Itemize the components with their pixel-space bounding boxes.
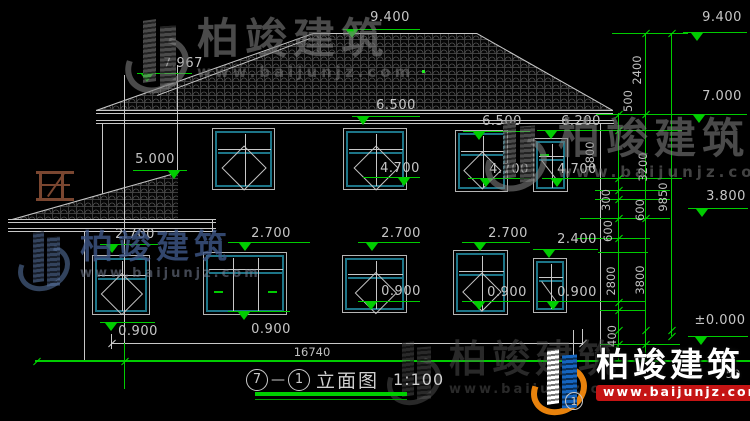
vdim-text: 2800 xyxy=(604,251,618,311)
level-text: 2.700 xyxy=(368,226,434,241)
title-underline xyxy=(255,392,407,396)
brand-logo-icon xyxy=(20,230,74,294)
level-triangle-icon xyxy=(398,178,410,186)
pane-dash xyxy=(268,291,277,293)
level-text: 2.700 xyxy=(102,227,168,242)
outline-line xyxy=(124,75,125,343)
outline-line xyxy=(96,120,614,121)
axis-circle-to: 1 xyxy=(288,369,310,391)
outline-line xyxy=(96,113,613,114)
watermark-text: 柏竣建筑 www.baijunjz.com xyxy=(449,340,630,396)
outline-line xyxy=(8,222,216,223)
level-triangle-icon xyxy=(366,243,378,251)
window xyxy=(212,128,275,190)
outline-line xyxy=(124,343,125,389)
level-triangle-icon xyxy=(543,250,555,258)
axis-dash: — xyxy=(271,372,285,388)
level-text: 9.400 xyxy=(357,10,423,25)
hdim-text: 16740 xyxy=(282,345,342,359)
level-line xyxy=(468,178,530,179)
level-triangle-icon xyxy=(239,243,251,251)
level-triangle-icon xyxy=(141,74,153,82)
brand-url: www.baijunjz.com xyxy=(449,383,630,396)
outline-line xyxy=(313,33,477,34)
level-text: ±0.000 xyxy=(687,313,750,328)
level-text: 0.900 xyxy=(474,285,540,300)
level-triangle-icon xyxy=(693,115,705,123)
level-triangle-icon xyxy=(365,302,377,310)
window xyxy=(203,252,287,315)
outline-line xyxy=(96,110,613,111)
vdim-text: 600 xyxy=(633,180,647,240)
level-text: 9.400 xyxy=(689,10,750,25)
roof-tiles xyxy=(96,33,613,110)
level-text: 6.200 xyxy=(548,114,614,129)
dim-tick xyxy=(642,327,650,335)
vdim-text: 9850 xyxy=(656,167,670,227)
level-text: 0.900 xyxy=(368,284,434,299)
vdim-text: 1800 xyxy=(583,126,597,186)
level-triangle-icon xyxy=(357,117,369,125)
pane-dash xyxy=(540,154,549,156)
drawing-title-block: 7 — 1 立面图 1:100 xyxy=(246,366,444,393)
drawing-title: 立面图 xyxy=(316,366,379,393)
level-triangle-icon xyxy=(473,302,485,310)
vdim-text: 400 xyxy=(605,306,619,366)
level-triangle-icon xyxy=(691,33,703,41)
drawing-scale: 1:100 xyxy=(393,370,444,389)
level-text: 0.900 xyxy=(544,285,610,300)
level-triangle-icon xyxy=(545,131,557,139)
outline-line xyxy=(112,343,583,344)
elevation-canvas: 9.4009.4007.9677.0006.5006.5006.2005.000… xyxy=(0,0,750,421)
level-triangle-icon xyxy=(168,171,180,179)
vdim-text: 3800 xyxy=(633,250,647,310)
outline-line xyxy=(39,171,42,201)
brand-name: 柏竣建筑 xyxy=(449,340,630,378)
pane-dash xyxy=(214,291,223,293)
hdim-text: 50 xyxy=(703,367,750,381)
window-mullion xyxy=(209,269,283,270)
level-triangle-icon xyxy=(547,302,559,310)
window-mullion xyxy=(209,272,283,274)
outline-line xyxy=(671,33,672,336)
outline-line xyxy=(612,33,688,34)
outline-line xyxy=(8,219,216,220)
level-text: 4.700 xyxy=(367,161,433,176)
logo-swoosh-icon xyxy=(522,355,596,421)
level-line xyxy=(462,242,530,243)
level-text: 4.700 xyxy=(476,162,542,177)
level-triangle-icon xyxy=(473,132,485,140)
logo-swoosh-icon xyxy=(10,236,78,300)
level-triangle-icon xyxy=(696,209,708,217)
level-triangle-icon xyxy=(474,243,486,251)
level-text: 0.900 xyxy=(105,324,171,339)
logo-building-icon xyxy=(47,237,60,287)
outline-line xyxy=(35,360,750,362)
title-underline-thin xyxy=(255,399,407,400)
level-triangle-icon xyxy=(695,337,707,345)
level-triangle-icon xyxy=(106,245,118,253)
window-frame xyxy=(206,255,284,312)
level-text: 3.800 xyxy=(693,189,750,204)
outline-line xyxy=(212,219,213,231)
vdim-text: 500 xyxy=(621,71,635,131)
window xyxy=(92,255,150,315)
level-text: 0.900 xyxy=(238,322,304,337)
green-dot xyxy=(422,70,425,73)
outline-line xyxy=(84,231,85,361)
level-triangle-icon xyxy=(551,179,563,187)
level-triangle-icon xyxy=(238,312,250,320)
window-mullion xyxy=(233,258,234,311)
level-text: 7.967 xyxy=(150,56,216,71)
level-triangle-icon xyxy=(346,30,358,38)
level-line xyxy=(363,177,420,178)
logo-building-icon xyxy=(33,231,44,283)
level-text: 5.000 xyxy=(122,152,188,167)
logo-building-icon xyxy=(547,349,559,405)
level-text: 6.500 xyxy=(469,114,535,129)
axis-circle-from: 7 xyxy=(246,369,268,391)
level-text: 2.700 xyxy=(475,226,541,241)
outline-line xyxy=(96,123,614,124)
brand-url: www.baijunjz.com xyxy=(596,385,750,401)
level-text: 6.500 xyxy=(363,98,429,113)
level-text: 2.700 xyxy=(238,226,304,241)
window-mullion xyxy=(258,258,259,311)
level-triangle-icon xyxy=(480,179,492,187)
axis-bubble-1: 1 xyxy=(565,392,583,410)
level-text: 7.000 xyxy=(689,89,750,104)
